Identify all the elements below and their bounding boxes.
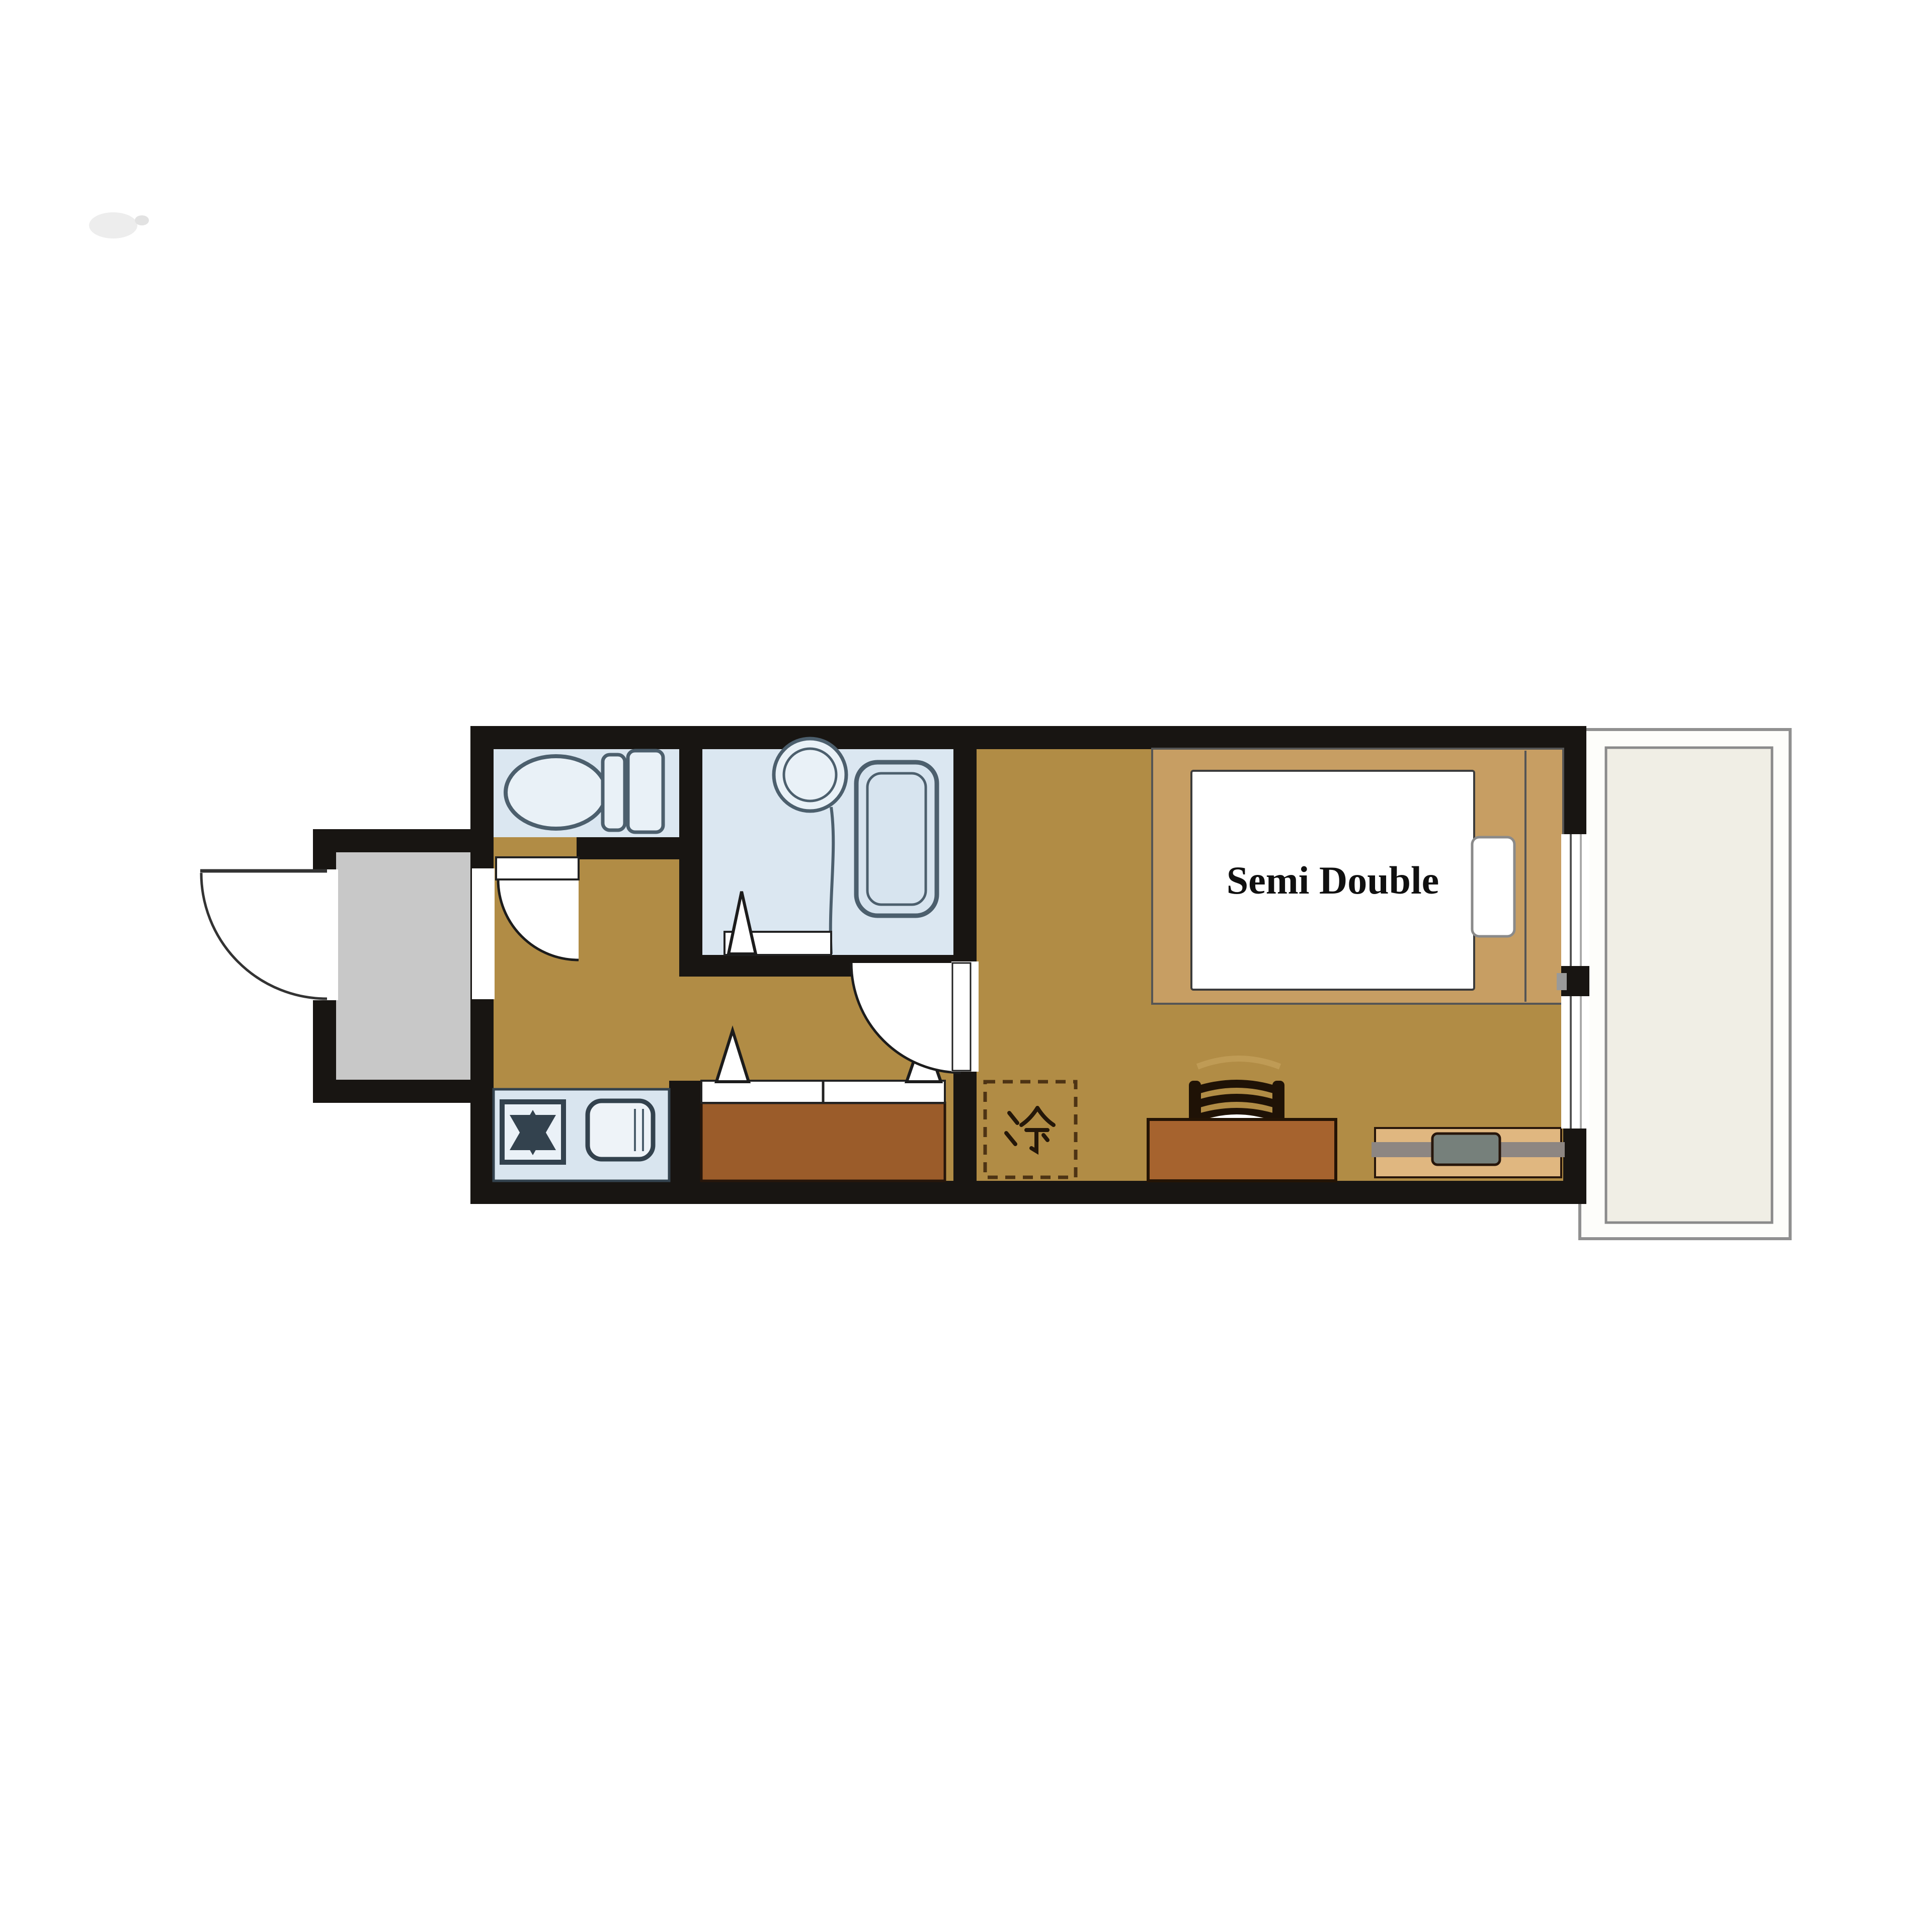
entrance-floor: [336, 852, 473, 1080]
main-door-leaf: [952, 963, 971, 1071]
wall-hall-mainroom-lower: [953, 1072, 977, 1204]
tv-on-board-icon: [1432, 1134, 1500, 1165]
desk: [1148, 1119, 1336, 1181]
bed-pillow: [1472, 837, 1514, 936]
wall-kitchen-closet: [669, 1081, 702, 1204]
smudge-dot: [135, 215, 149, 225]
wall-under-toilet: [577, 837, 702, 859]
floor-plan: Semi Double 冷: [0, 0, 1932, 1932]
window-handle: [1557, 973, 1567, 990]
balcony: [1580, 730, 1790, 1239]
wall-hall-mainroom-upper: [953, 726, 977, 961]
closet-body: [701, 1103, 945, 1181]
entrance-threshold: [472, 868, 495, 999]
window-gap-upper: [1561, 834, 1589, 966]
entrance: [313, 829, 494, 1103]
entrance-door-opening: [310, 869, 338, 1000]
toilet-tank: [628, 751, 663, 832]
bed-size-label: Semi Double: [1227, 858, 1439, 902]
toilet-door-leaf: [496, 857, 579, 879]
window-gap-lower: [1561, 996, 1589, 1129]
toilet-icon: [506, 756, 606, 829]
smudge-blob: [89, 212, 137, 238]
toilet-room: [494, 749, 679, 837]
kitchen: [494, 1089, 669, 1181]
floor-plan-canvas: Semi Double 冷: [0, 0, 1932, 1932]
tv-board-group: [1372, 1128, 1565, 1177]
sliding-window: [1557, 834, 1589, 1129]
toilet-seat-lid: [603, 755, 625, 830]
bed: Semi Double: [1152, 749, 1563, 1004]
balcony-floor: [1606, 748, 1772, 1223]
